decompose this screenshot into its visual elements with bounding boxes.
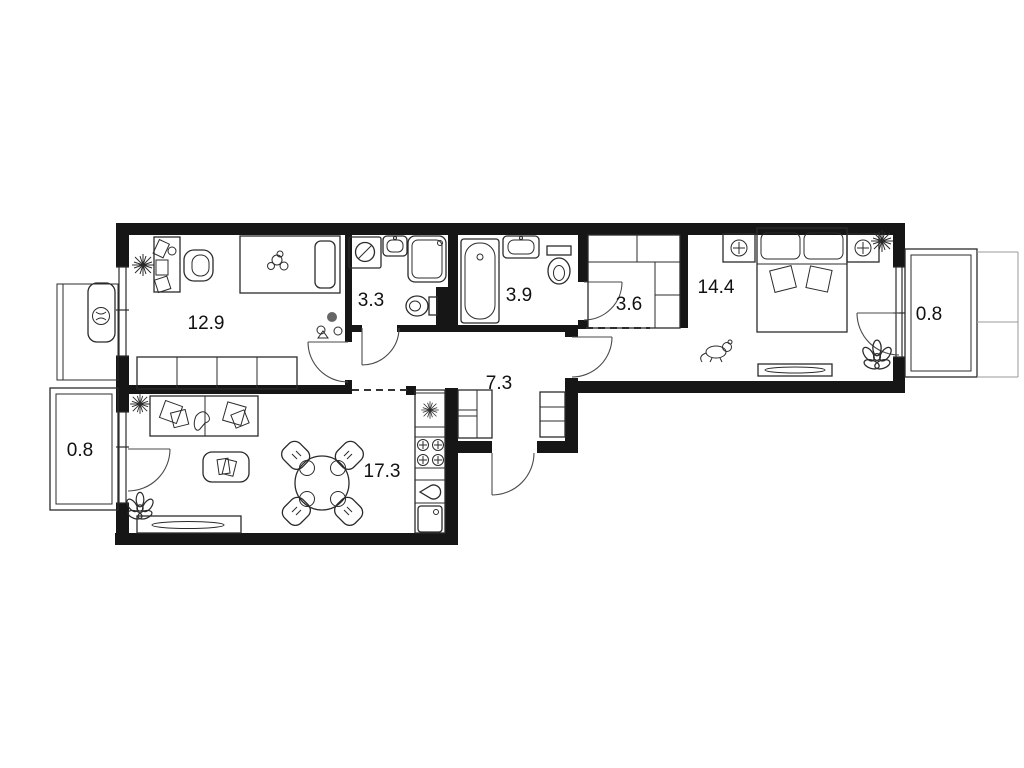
wall-entrance-left-stub xyxy=(445,441,492,453)
label-kitchen-living: 17.3 xyxy=(364,461,401,482)
furniture-living-room xyxy=(125,394,367,533)
label-hallway: 7.3 xyxy=(486,373,512,394)
bathtub-icon xyxy=(461,239,499,323)
cat-doodle xyxy=(194,412,209,431)
label-bedroom-right: 14.4 xyxy=(698,277,735,298)
plant-icon xyxy=(871,230,893,252)
single-bed xyxy=(240,236,340,293)
animal-doodle xyxy=(701,340,732,362)
wall-bath39-closet xyxy=(578,235,588,282)
kitchen-sink-icon xyxy=(418,506,442,532)
toy-icon xyxy=(317,312,342,338)
wall-kitchen-east xyxy=(445,388,458,545)
desk xyxy=(154,237,180,292)
door-balcony-left xyxy=(128,449,170,491)
fridge-icon xyxy=(415,393,445,427)
window-balcony-door-right xyxy=(893,267,905,357)
sofa xyxy=(150,396,258,436)
plant-icon xyxy=(130,394,150,414)
door-entrance xyxy=(492,453,534,495)
toilet-icon xyxy=(547,246,571,284)
kitchen-block xyxy=(415,390,445,533)
label-balcony-right: 0.8 xyxy=(916,304,942,325)
label-walk-in-closet: 3.6 xyxy=(616,294,642,315)
shower-icon xyxy=(408,236,446,282)
floor-plan-drawing: 12.9 3.3 3.9 3.6 14.4 0.8 7.3 17.3 0.8 xyxy=(0,0,1024,768)
wall-right-upper xyxy=(893,233,905,267)
wall-bath33-south-a xyxy=(352,325,362,332)
coffee-table xyxy=(203,452,249,482)
wall-closet-bedroom xyxy=(680,235,688,328)
wall-bedroom-bottom xyxy=(578,381,905,393)
wall-bath33-bath39 xyxy=(448,235,458,287)
double-bed xyxy=(757,228,847,332)
room-labels: 12.9 3.3 3.9 3.6 14.4 0.8 7.3 17.3 0.8 xyxy=(67,277,942,482)
plumbing-shaft xyxy=(436,287,458,329)
label-bathroom-large: 3.9 xyxy=(506,285,532,306)
label-bedroom-left: 12.9 xyxy=(188,313,225,334)
furniture-bedroom-left xyxy=(132,236,342,389)
stove-icon xyxy=(415,437,445,468)
dresser xyxy=(758,364,832,376)
door-bathroom-small xyxy=(362,328,399,365)
door-bedroom-right xyxy=(572,337,612,377)
plant-icon xyxy=(861,340,894,371)
faucet-icon xyxy=(420,485,441,499)
cabinet-row xyxy=(137,357,297,389)
label-balcony-left: 0.8 xyxy=(67,440,93,461)
ac-unit-icon xyxy=(88,283,115,342)
wall-left-upper-a xyxy=(116,223,129,267)
wall-bath39-south xyxy=(455,325,567,332)
wall-bottom xyxy=(115,533,458,545)
tv-stand xyxy=(137,516,241,533)
label-bathroom-small: 3.3 xyxy=(358,290,384,311)
dining-set xyxy=(278,438,366,529)
furniture-bedroom-right xyxy=(701,228,894,376)
nightstand-left xyxy=(723,234,755,262)
toilet-icon xyxy=(406,296,437,316)
plant-icon xyxy=(132,254,154,276)
floor-plan-canvas: 12.9 3.3 3.9 3.6 14.4 0.8 7.3 17.3 0.8 xyxy=(0,0,1024,768)
fixtures-bathroom-large xyxy=(461,236,571,323)
door-bedroom-left xyxy=(308,342,348,382)
washing-machine-icon xyxy=(349,237,381,268)
hallway-wardrobes xyxy=(458,390,565,438)
sink-icon xyxy=(383,236,407,256)
wardrobe-a xyxy=(458,390,492,438)
wardrobe-b xyxy=(540,392,565,437)
exterior-ledge-left xyxy=(57,283,118,380)
sink-icon xyxy=(503,236,539,258)
neighbor-structure-right xyxy=(977,252,1018,377)
wall-hall-east xyxy=(565,378,578,453)
